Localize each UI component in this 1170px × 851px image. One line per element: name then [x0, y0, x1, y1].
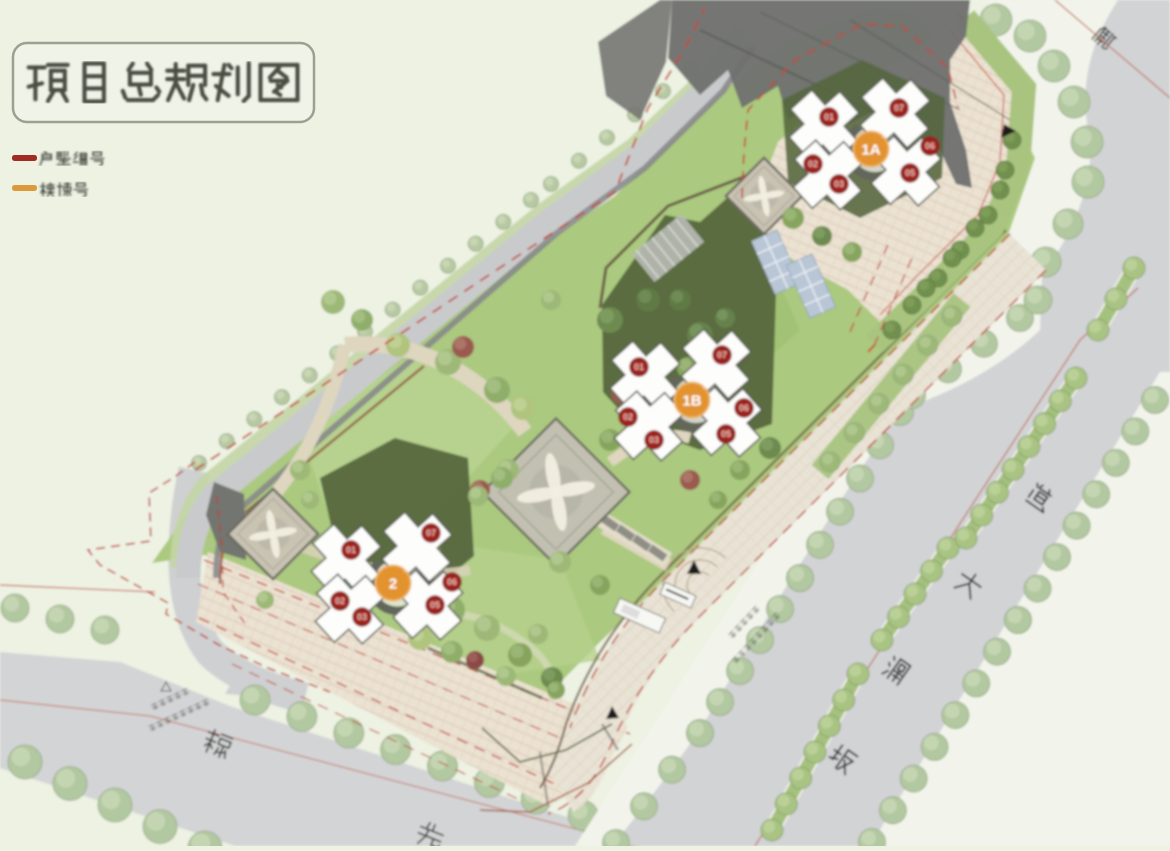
svg-text:03: 03 — [834, 179, 844, 189]
svg-text:07: 07 — [717, 350, 727, 360]
svg-text:07: 07 — [894, 103, 904, 113]
svg-text:1B: 1B — [682, 393, 701, 410]
svg-text:1A: 1A — [861, 142, 880, 159]
svg-text:05: 05 — [721, 429, 731, 439]
svg-text:01: 01 — [824, 112, 834, 122]
svg-text:01: 01 — [346, 545, 356, 555]
svg-text:01: 01 — [634, 362, 644, 372]
svg-text:05: 05 — [430, 600, 440, 610]
svg-text:05: 05 — [905, 168, 915, 178]
svg-text:02: 02 — [623, 412, 633, 422]
svg-text:06: 06 — [925, 141, 935, 151]
svg-text:07: 07 — [426, 528, 436, 538]
svg-text:06: 06 — [739, 403, 749, 413]
svg-text:02: 02 — [808, 159, 818, 169]
svg-text:02: 02 — [335, 596, 345, 606]
svg-text:06: 06 — [447, 577, 457, 587]
svg-text:03: 03 — [357, 612, 367, 622]
svg-text:03: 03 — [649, 435, 659, 445]
svg-text:2: 2 — [389, 576, 397, 593]
